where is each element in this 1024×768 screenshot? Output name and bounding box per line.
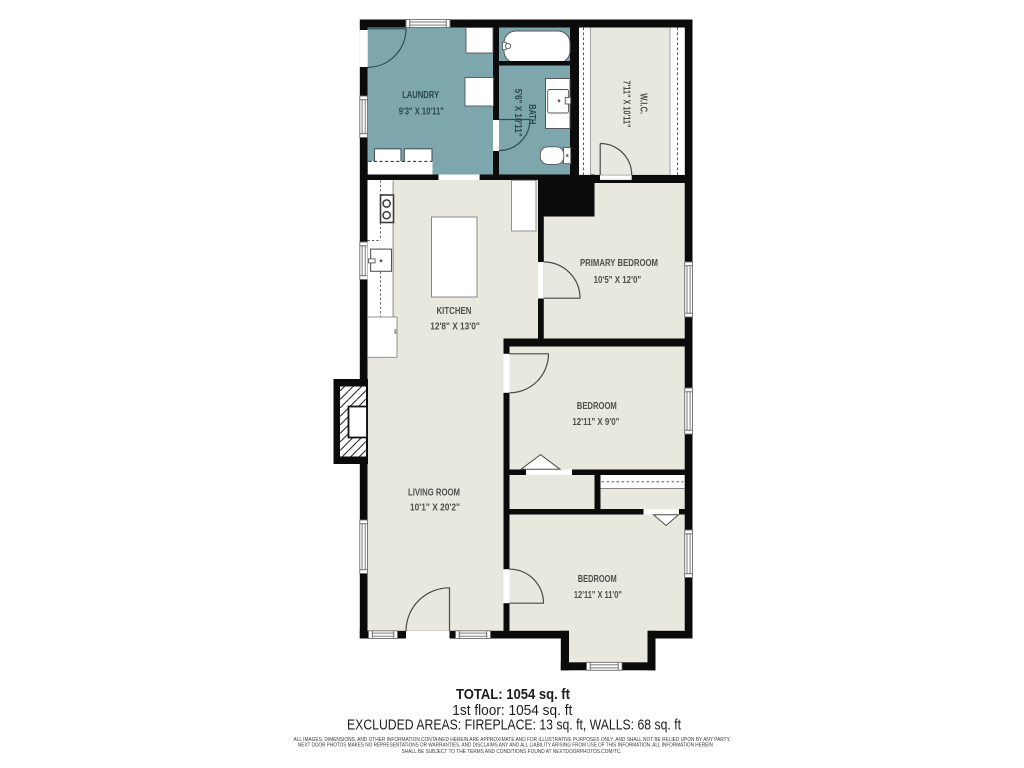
svg-text:10'1" X 20'2": 10'1" X 20'2" — [410, 503, 460, 514]
svg-text:10'5" X 12'0": 10'5" X 12'0" — [594, 275, 642, 286]
svg-text:TOTAL: 1054 sq. ft: TOTAL: 1054 sq. ft — [456, 686, 570, 703]
svg-text:W.I.C.: W.I.C. — [638, 93, 649, 114]
svg-text:12'11" X 9'0": 12'11" X 9'0" — [572, 417, 619, 428]
svg-text:LIVING ROOM: LIVING ROOM — [408, 488, 460, 499]
svg-text:5'6" X 10'11": 5'6" X 10'11" — [512, 89, 523, 137]
svg-text:EXCLUDED AREAS: FIREPLACE: 13: EXCLUDED AREAS: FIREPLACE: 13 sq. ft, WA… — [347, 717, 682, 734]
svg-text:LAUNDRY: LAUNDRY — [402, 90, 439, 101]
svg-text:SHALL BE SUBJECT TO THE TERMS: SHALL BE SUBJECT TO THE TERMS AND CONDIT… — [402, 749, 622, 755]
svg-text:BEDROOM: BEDROOM — [577, 401, 617, 412]
svg-text:BATH: BATH — [526, 104, 537, 124]
svg-text:9'3" X 10'11": 9'3" X 10'11" — [399, 107, 444, 118]
svg-text:12'8" X 13'0": 12'8" X 13'0" — [430, 322, 480, 333]
svg-text:PRIMARY BEDROOM: PRIMARY BEDROOM — [580, 258, 658, 269]
svg-text:BEDROOM: BEDROOM — [578, 574, 617, 585]
svg-text:NEXT DOOR PHOTOS MAKES NO REPR: NEXT DOOR PHOTOS MAKES NO REPRESENTATION… — [298, 743, 713, 749]
svg-text:7'11" X 10'11": 7'11" X 10'11" — [621, 81, 632, 128]
svg-text:12'11" X 11'0": 12'11" X 11'0" — [574, 590, 622, 601]
svg-text:KITCHEN: KITCHEN — [437, 306, 472, 317]
